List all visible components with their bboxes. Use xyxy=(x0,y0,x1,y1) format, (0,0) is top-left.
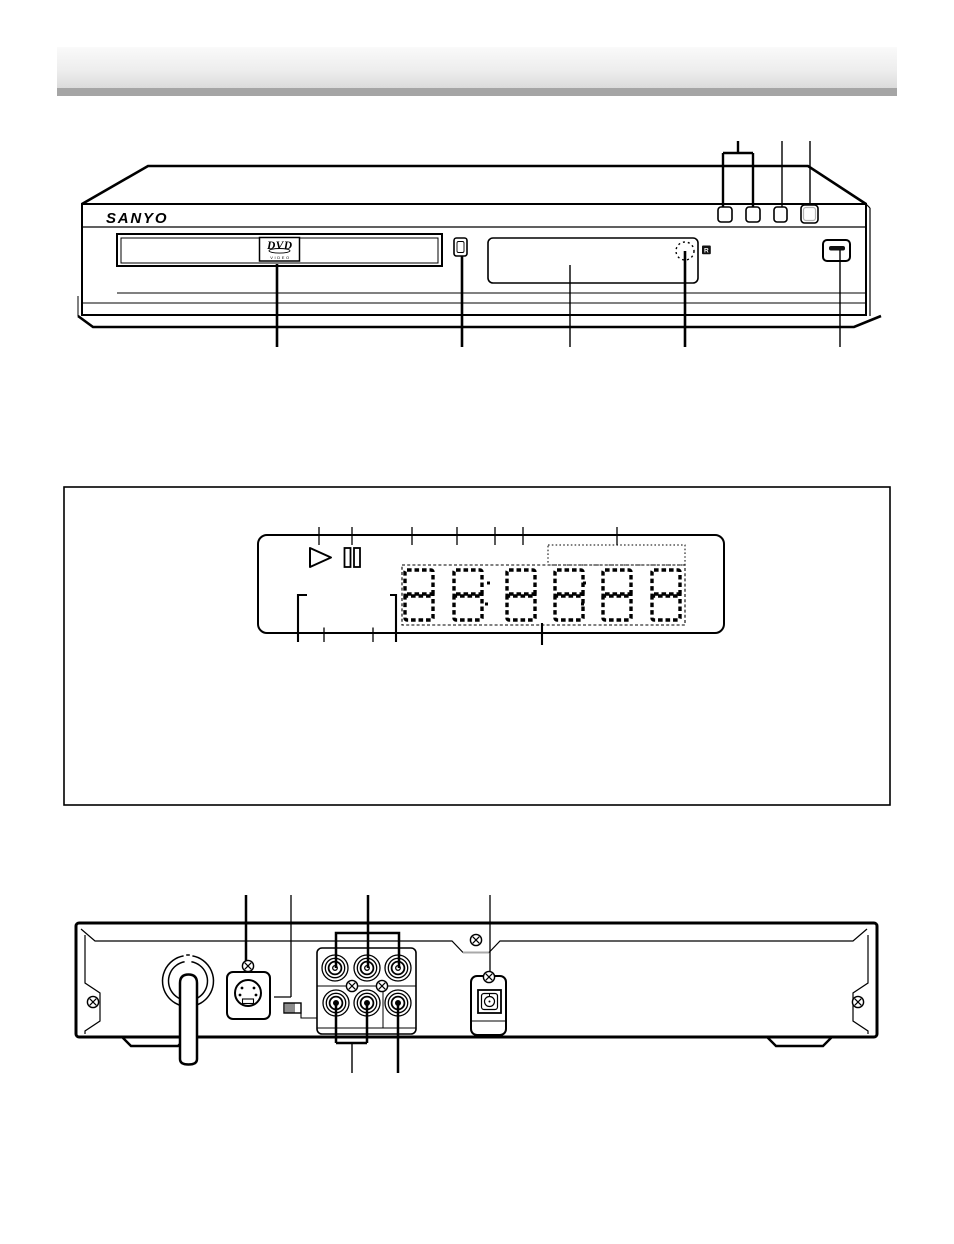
plate-screw xyxy=(346,980,357,991)
header-bottom-band xyxy=(57,88,897,96)
remote-sensor-badge-letter: R xyxy=(704,247,709,254)
connector-screw xyxy=(483,971,494,982)
front-top-callout-lines xyxy=(723,141,810,207)
power-cord-cable xyxy=(180,975,197,1065)
unit-top-face xyxy=(82,166,866,204)
open-close-button[interactable] xyxy=(774,207,787,222)
plate-screw xyxy=(376,980,387,991)
dvd-logo-title: DVD xyxy=(266,240,293,252)
display-window xyxy=(488,238,698,283)
dvd-logo-subtitle: VIDEO xyxy=(270,255,290,260)
video-switch[interactable] xyxy=(284,1003,301,1013)
chassis-screw xyxy=(87,996,98,1007)
chassis-screw xyxy=(852,996,863,1007)
manual-page: SANYO DVD VIDEO R xyxy=(0,0,954,1244)
brand-logo-text: SANYO xyxy=(106,210,168,227)
standby-button[interactable] xyxy=(801,205,818,223)
skip-button[interactable] xyxy=(746,207,760,222)
power-button[interactable] xyxy=(823,240,850,261)
display-panel-figure xyxy=(64,487,890,805)
stop-button[interactable] xyxy=(454,238,467,256)
callout-line xyxy=(723,141,753,207)
page-header-bar xyxy=(57,47,897,96)
optical-digital-audio-output[interactable] xyxy=(471,971,506,1035)
dvd-video-logo: DVD VIDEO xyxy=(260,238,300,262)
rear-view-figure xyxy=(76,895,877,1073)
front-view-figure: SANYO DVD VIDEO R xyxy=(78,141,881,347)
remote-sensor-badge: R xyxy=(702,246,711,255)
connector-screw xyxy=(242,960,253,971)
play-button[interactable] xyxy=(718,207,732,222)
chassis-screw xyxy=(470,934,481,945)
diagram-canvas: SANYO DVD VIDEO R xyxy=(0,0,954,1244)
unit-base xyxy=(78,316,881,327)
